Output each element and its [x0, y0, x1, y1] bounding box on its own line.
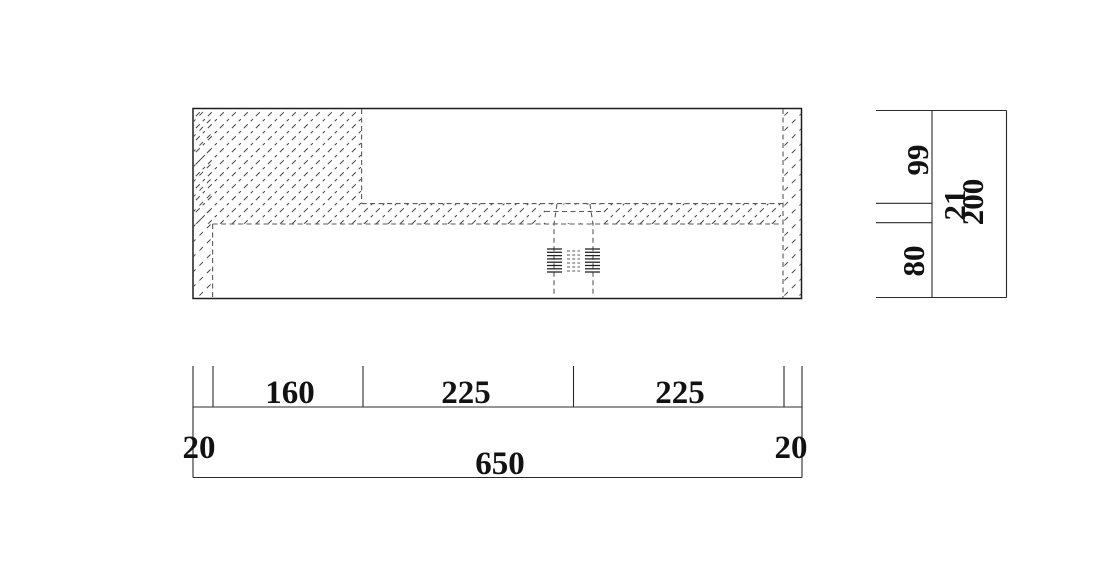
- dim-label-160: 160: [265, 375, 315, 411]
- dim-label-20-left: 20: [183, 430, 216, 466]
- hatch-right-wall: [783, 109, 801, 297]
- technical-drawing: 99 21 80 200 20 160 225 225 20 650: [0, 0, 1112, 568]
- right-dimension-scale: 99 21 80 200: [876, 111, 1007, 298]
- drain-opening-gap: [545, 205, 601, 224]
- hatch-top-left-block: [194, 109, 362, 224]
- hatch-left-wall: [194, 109, 213, 297]
- drawing-canvas: 99 21 80 200 20 160 225 225 20 650: [0, 0, 1112, 568]
- section-view: [193, 109, 802, 299]
- dim-label-20-right: 20: [775, 430, 808, 466]
- dim-label-200-total: 200: [955, 179, 990, 226]
- dim-label-225-b: 225: [655, 375, 705, 411]
- dim-label-80: 80: [896, 246, 931, 277]
- dim-label-225-a: 225: [441, 375, 491, 411]
- dim-label-99: 99: [900, 145, 935, 176]
- bottom-dimension-scale: 20 160 225 225 20 650: [183, 366, 808, 482]
- dim-label-650-total: 650: [475, 446, 525, 482]
